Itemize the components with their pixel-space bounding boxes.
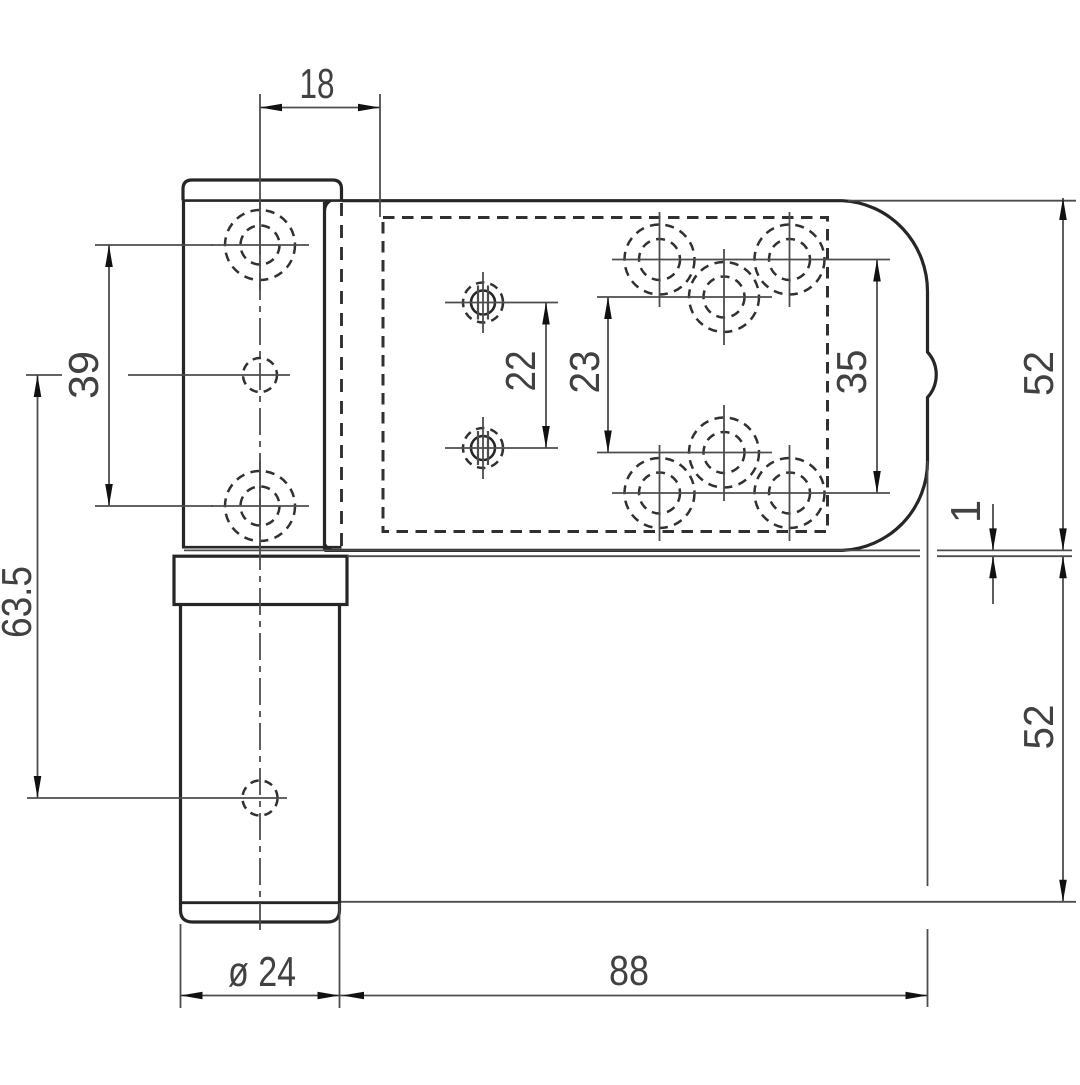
svg-text:88: 88: [609, 947, 649, 994]
svg-text:22: 22: [497, 351, 544, 392]
svg-text:39: 39: [60, 351, 107, 399]
svg-text:35: 35: [828, 350, 875, 395]
svg-text:23: 23: [561, 351, 608, 394]
svg-text:1: 1: [942, 500, 989, 523]
svg-text:52: 52: [1015, 705, 1062, 750]
svg-text:63.5: 63.5: [0, 566, 40, 638]
svg-text:52: 52: [1015, 351, 1062, 396]
svg-text:18: 18: [300, 60, 335, 107]
svg-text:ø 24: ø 24: [228, 948, 296, 995]
